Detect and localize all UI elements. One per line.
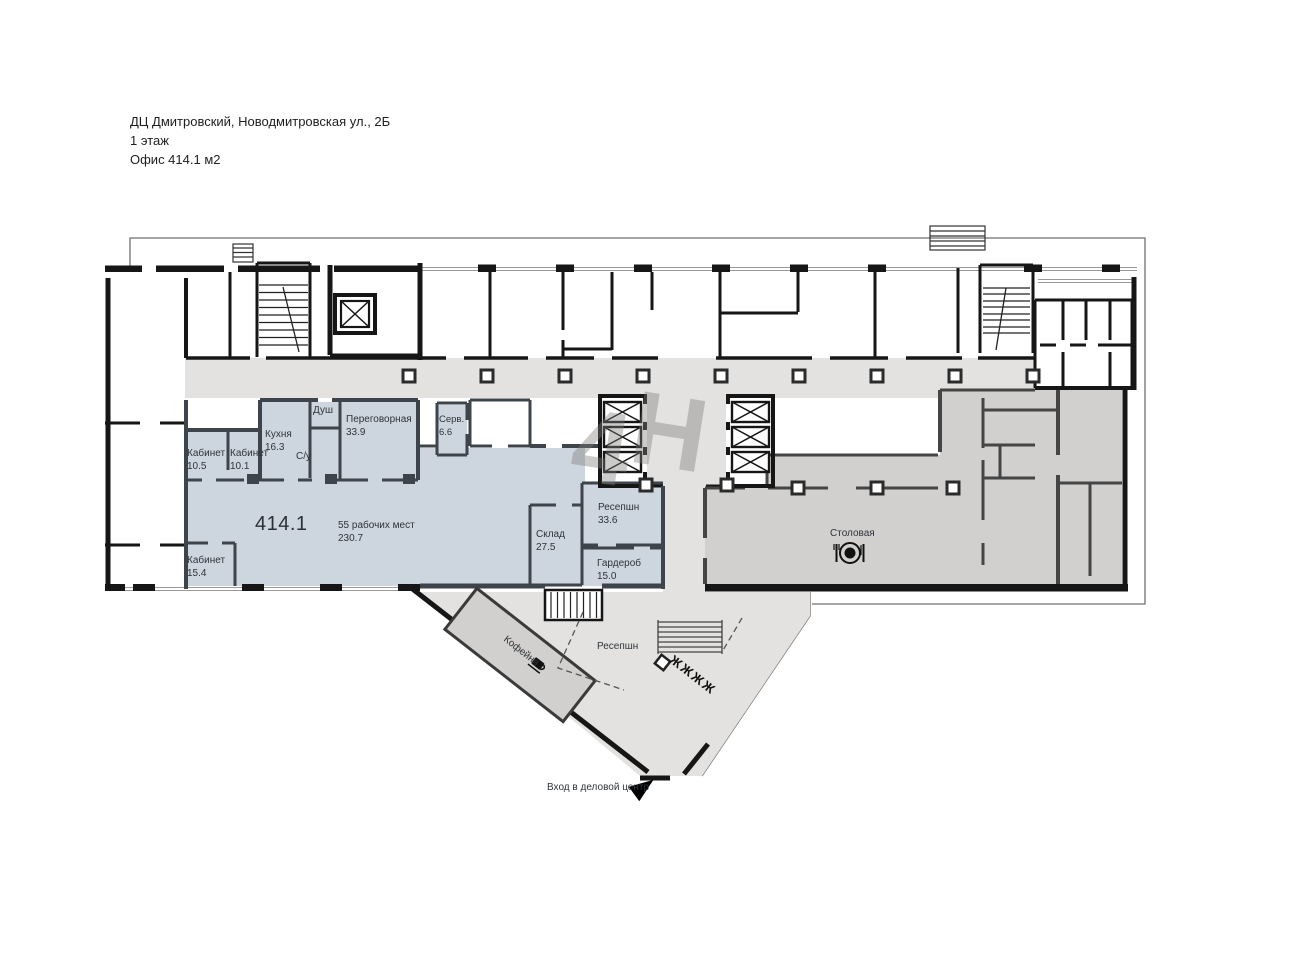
title-building: ДЦ Дмитровский, Новодмитровская ул., 2Б — [130, 112, 390, 131]
elevator-top-left — [335, 295, 375, 333]
room-label-kabinet-154: Кабинет15.4 — [187, 555, 225, 579]
title-floor: 1 этаж — [130, 131, 390, 150]
stairs-top-right — [983, 288, 1030, 350]
elevator-bank-right — [726, 396, 775, 486]
room-label-resepshn-office: Ресепшн33.6 — [598, 502, 639, 526]
room-label-su: С/у — [296, 451, 311, 463]
office-area-label: 414.1 — [255, 514, 308, 534]
title-block: ДЦ Дмитровский, Новодмитровская ул., 2Б … — [130, 112, 390, 169]
room-label-kabinet-105: Кабинет10.5 — [187, 448, 225, 472]
entrance-label: Вход в деловой центр — [547, 782, 649, 794]
zone-fills — [185, 300, 1132, 776]
room-label-sklad: Склад27.5 — [536, 529, 565, 553]
room-label-resepshn-lobby: Ресепшн — [597, 641, 638, 653]
room-label-kuhnya: Кухня16.3 — [265, 429, 292, 453]
room-label-dush: Душ — [313, 405, 333, 417]
room-label-garderob: Гардероб15.0 — [597, 558, 641, 582]
elevator-bank-left — [598, 396, 647, 486]
floor-plan-page: ДЦ Дмитровский, Новодмитровская ул., 2Б … — [0, 0, 1309, 955]
stairs-garderob — [545, 590, 602, 620]
exterior-stair-left — [233, 244, 253, 262]
room-label-stolovaya: Столовая — [830, 528, 875, 540]
room-label-peregovornaya: Переговорная33.9 — [346, 414, 412, 438]
title-offer: Офис 414.1 м2 — [130, 150, 390, 169]
stairs-top-left — [259, 285, 308, 352]
room-label-kabinet-101: Кабинет10.1 — [230, 448, 268, 472]
room-label-serv: Серв.6.6 — [439, 414, 464, 438]
workplaces-label: 55 рабочих мест230.7 — [338, 520, 415, 544]
